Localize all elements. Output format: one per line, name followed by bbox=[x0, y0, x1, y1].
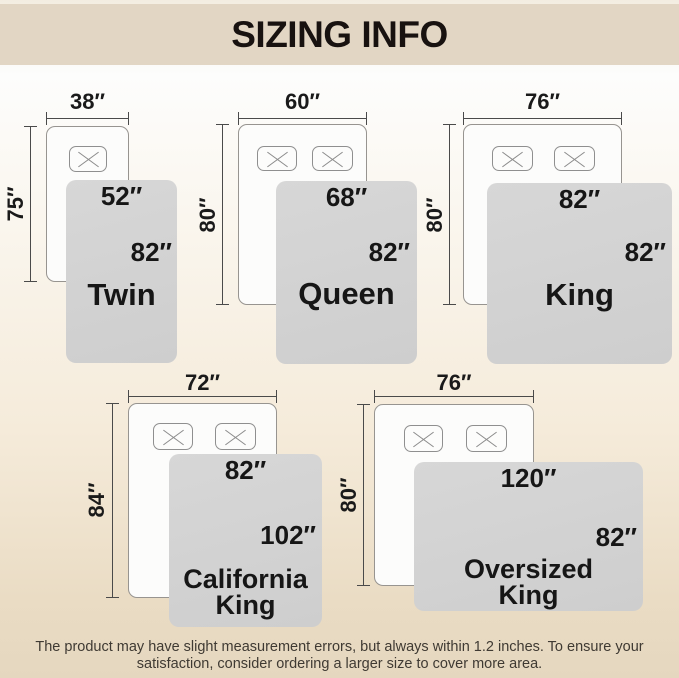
bed-width-dimension-line bbox=[374, 396, 534, 397]
page-title: SIZING INFO bbox=[231, 14, 448, 56]
blanket-width-label: 120″ bbox=[414, 463, 643, 494]
bed-length-label: 75″ bbox=[5, 174, 27, 234]
sizing-info-graphic: SIZING INFO 38″ 75″ 52″ 82″ Twin 60″ 80″… bbox=[0, 0, 679, 678]
blanket-length-label: 82″ bbox=[112, 237, 172, 268]
size-name-label: Twin bbox=[66, 277, 177, 313]
bed-length-label: 80″ bbox=[338, 465, 360, 525]
pillow-icon bbox=[257, 146, 297, 171]
bed-length-dimension-line bbox=[30, 126, 31, 282]
bed-width-dimension-line bbox=[463, 118, 622, 119]
header-band: SIZING INFO bbox=[0, 4, 679, 65]
bed-width-dimension-line bbox=[128, 396, 277, 397]
bed-width-label: 60″ bbox=[238, 89, 367, 115]
blanket-length-label: 82″ bbox=[577, 522, 637, 553]
size-name-line2: King bbox=[414, 582, 643, 608]
footer-note-line2: satisfaction, consider ordering a larger… bbox=[0, 656, 679, 672]
bed-length-dimension-line bbox=[449, 124, 450, 305]
blanket-width-label: 52″ bbox=[66, 181, 177, 212]
size-name-line1: Oversized bbox=[414, 556, 643, 582]
size-name-label: Oversized King bbox=[414, 556, 643, 608]
size-name-label: King bbox=[487, 277, 672, 313]
blanket-length-label: 82″ bbox=[350, 237, 410, 268]
pillow-icon bbox=[312, 146, 353, 171]
pillow-icon bbox=[404, 425, 443, 452]
bed-width-label: 72″ bbox=[128, 370, 277, 396]
bed-width-label: 38″ bbox=[46, 89, 129, 115]
pillow-icon bbox=[492, 146, 533, 171]
bed-length-dimension-line bbox=[363, 404, 364, 586]
size-name-label: Queen bbox=[276, 276, 417, 312]
bed-width-dimension-line bbox=[238, 118, 367, 119]
blanket-width-label: 82″ bbox=[169, 455, 322, 486]
bed-length-label: 84″ bbox=[86, 470, 108, 530]
pillow-icon bbox=[215, 423, 256, 450]
blanket-width-label: 82″ bbox=[487, 184, 672, 215]
pillow-icon bbox=[69, 146, 107, 172]
bed-length-label: 80″ bbox=[197, 185, 219, 245]
bed-length-dimension-line bbox=[222, 124, 223, 305]
bed-length-label: 80″ bbox=[424, 185, 446, 245]
pillow-icon bbox=[466, 425, 507, 452]
pillow-icon bbox=[554, 146, 595, 171]
bed-width-label: 76″ bbox=[374, 370, 534, 396]
size-name-line2: King bbox=[169, 592, 322, 618]
pillow-icon bbox=[153, 423, 193, 450]
size-name-line1: California bbox=[169, 566, 322, 592]
size-name-label: California King bbox=[169, 566, 322, 618]
bed-width-label: 76″ bbox=[463, 89, 622, 115]
blanket-length-label: 82″ bbox=[606, 237, 666, 268]
blanket-width-label: 68″ bbox=[276, 182, 417, 213]
bed-length-dimension-line bbox=[112, 403, 113, 598]
footer-note-line1: The product may have slight measurement … bbox=[0, 639, 679, 655]
bed-width-dimension-line bbox=[46, 118, 129, 119]
blanket-length-label: 102″ bbox=[236, 520, 316, 551]
